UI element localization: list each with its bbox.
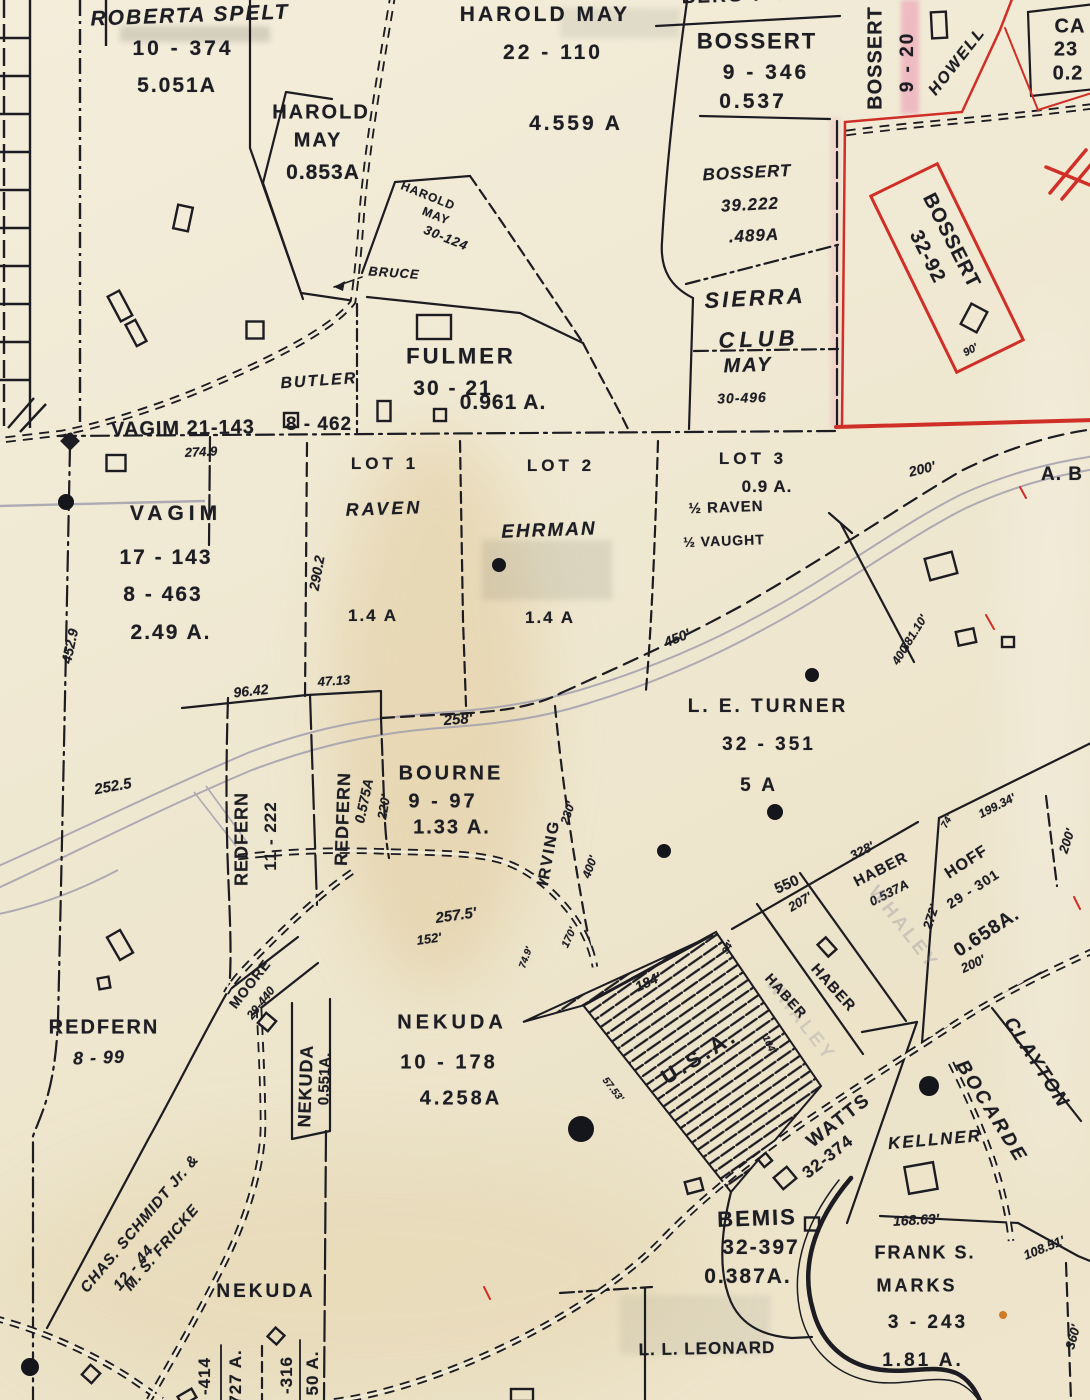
map-label-dim-152: 152' xyxy=(416,931,442,948)
map-label-dim-258: 258' xyxy=(443,711,473,729)
map-label-bossert-39-area: .489A xyxy=(728,226,779,246)
building-marker xyxy=(956,628,977,645)
building-marker xyxy=(925,552,958,580)
map-label-fulmer-area: 0.961 A. xyxy=(460,392,547,414)
map-label-dim-727a: 727 A. xyxy=(227,1349,245,1400)
ink-dot xyxy=(657,844,671,858)
map-label-lot3-area: 0.9 A. xyxy=(742,478,793,496)
map-label-marks-area: 1.81 A. xyxy=(882,1351,964,1371)
map-label-vagim-name: VAGIM xyxy=(130,503,222,525)
map-label-bourne-area: 1.33 A. xyxy=(413,818,491,839)
map-label-raven-name: RAVEN xyxy=(345,498,422,520)
building-marker xyxy=(904,1162,937,1194)
map-label-vagim-book-1: 17 - 143 xyxy=(119,547,212,569)
map-label-turner-book: 32 - 351 xyxy=(722,735,816,755)
map-label-ca-parcel-2: 23 xyxy=(1054,40,1078,61)
ink-dot xyxy=(999,1311,1007,1319)
ink-dot xyxy=(21,1358,39,1376)
map-label-redfern-899-book: 8 - 99 xyxy=(73,1048,126,1069)
building-marker xyxy=(378,401,391,421)
map-label-butler-book: 8 - 462 xyxy=(286,415,352,435)
map-label-bossert-946-name: BOSSERT xyxy=(697,29,817,52)
map-label-lot1-title: LOT 1 xyxy=(351,455,419,473)
map-label-nekuda-bottom-name: NEKUDA xyxy=(216,1282,315,1302)
map-label-bossert-920-book: 9 - 20 xyxy=(898,32,918,93)
map-label-ab-label: A. B xyxy=(1041,465,1083,485)
map-label-bourne-name: BOURNE xyxy=(399,764,504,785)
map-label-lot2-area: 1.4 A xyxy=(525,609,575,627)
building-marker xyxy=(247,322,264,339)
building-marker xyxy=(434,409,446,421)
map-label-dim-414: -414 xyxy=(196,1357,214,1395)
building-marker xyxy=(511,1389,533,1400)
map-label-lot2-title: LOT 2 xyxy=(527,457,595,475)
map-label-dim-50a: 50 A. xyxy=(304,1350,322,1395)
bossert-92-red-box xyxy=(871,164,1023,373)
map-label-harold-may-area: 4.559 A xyxy=(529,113,623,135)
ink-dot xyxy=(919,1076,939,1096)
map-label-may-0853-area: 0.853A xyxy=(286,162,360,184)
map-label-redfern-11-book: 11 - 222 xyxy=(262,801,280,870)
map-label-bemis-area: 0.387A. xyxy=(704,1266,792,1288)
building-marker xyxy=(98,977,111,990)
map-label-bossert-920-name: BOSSERT xyxy=(866,6,887,110)
map-label-marks-name-1: FRANK S. xyxy=(875,1244,976,1263)
map-label-turner-area: 5 A xyxy=(740,776,778,796)
map-label-dim-47-13: 47.13 xyxy=(317,673,350,689)
map-label-nekuda-551-area: 0.551A. xyxy=(316,1052,334,1105)
survey-ladder xyxy=(0,0,106,432)
map-label-nekuda-main-name: NEKUDA xyxy=(397,1013,507,1034)
map-label-nekuda-551-name: NEKUDA xyxy=(295,1044,317,1128)
map-label-vagim-road-label: VAGIM 21-143 xyxy=(111,417,255,441)
map-label-vagim-area: 2.49 A. xyxy=(131,622,212,644)
map-label-fulmer-name: FULMER xyxy=(406,344,516,367)
map-label-leonard-name: L. L. LEONARD xyxy=(638,1339,775,1359)
building-marker xyxy=(961,304,988,333)
map-label-lot1-area: 1.4 A xyxy=(348,607,398,625)
map-label-may-30496-book: 30-496 xyxy=(717,390,767,406)
map-label-marks-book: 3 - 243 xyxy=(888,1313,968,1333)
map-label-bossert-946-book: 9 - 346 xyxy=(723,62,809,84)
map-label-redfern-11-name: REDFERN xyxy=(233,792,252,886)
map-label-may-0853-name-1: HAROLD xyxy=(272,103,370,124)
map-label-bossert-946-area: 0.537 xyxy=(719,91,787,113)
ink-dot xyxy=(568,1116,594,1142)
map-label-bemis-book: 32-397 xyxy=(722,1237,799,1259)
map-label-ca-parcel-1: CA xyxy=(1055,17,1086,38)
building-marker xyxy=(108,291,133,322)
building-marker xyxy=(107,455,126,471)
map-label-dim-168-63: 168.63' xyxy=(893,1211,940,1228)
map-label-half-vaught: ½ VAUGHT xyxy=(683,532,765,550)
map-label-dim-274-9: 274.9 xyxy=(184,444,217,459)
plat-map: ROBERTA SPELT10 - 3745.051AHAROLDMAY0.85… xyxy=(0,0,1090,1400)
map-label-turner-name: L. E. TURNER xyxy=(688,697,849,717)
map-label-sierra-club-2: CLUB xyxy=(718,326,800,352)
building-marker xyxy=(417,315,451,339)
building-marker xyxy=(685,1178,704,1194)
building-marker xyxy=(1002,637,1014,647)
building-marker xyxy=(107,930,133,960)
map-label-nekuda-main-book: 10 - 178 xyxy=(400,1053,497,1074)
map-label-marks-name-2: MARKS xyxy=(877,1277,958,1296)
map-label-may-30496-name: MAY xyxy=(723,355,773,378)
map-label-harold-may-name: HAROLD MAY xyxy=(460,4,630,26)
map-label-half-raven: ½ RAVEN xyxy=(688,499,764,517)
building-marker xyxy=(178,1389,197,1400)
map-label-nekuda-main-area: 4.258A xyxy=(420,1089,503,1110)
ink-dot xyxy=(58,494,74,510)
map-label-bemis-name: BEMIS xyxy=(717,1205,797,1231)
building-marker xyxy=(82,1365,100,1383)
map-label-may-0853-name-2: MAY xyxy=(294,131,343,152)
map-label-sierra-club-1: SIERRA xyxy=(704,284,806,312)
map-label-roberta-spelt-book: 10 - 374 xyxy=(132,38,233,60)
building-marker xyxy=(774,1167,797,1189)
map-label-bossert-39-book: 39.222 xyxy=(721,195,780,216)
building-marker xyxy=(126,320,147,346)
map-label-lot3-title: LOT 3 xyxy=(719,450,787,468)
building-marker xyxy=(818,937,837,956)
building-marker xyxy=(931,12,947,39)
map-label-ehrman-name: EHRMAN xyxy=(501,519,597,542)
map-label-dim-316: -316 xyxy=(278,1356,296,1394)
ink-dot xyxy=(492,558,506,572)
map-label-bourne-book: 9 - 97 xyxy=(408,792,477,813)
map-label-vagim-book-2: 8 - 463 xyxy=(123,584,202,606)
red-hash-mark xyxy=(1046,150,1090,199)
map-label-ca-parcel-3: 0.2 xyxy=(1053,64,1084,85)
building-marker xyxy=(173,205,193,232)
building-marker xyxy=(268,1328,285,1345)
map-label-roberta-spelt-area: 5.051A xyxy=(137,75,217,97)
buildings xyxy=(82,12,1014,1400)
ink-dot xyxy=(805,668,819,682)
map-label-harold-may-book: 22 - 110 xyxy=(503,42,603,64)
map-label-redfern-899-name: REDFERN xyxy=(49,1018,160,1039)
ink-dot xyxy=(767,804,783,820)
